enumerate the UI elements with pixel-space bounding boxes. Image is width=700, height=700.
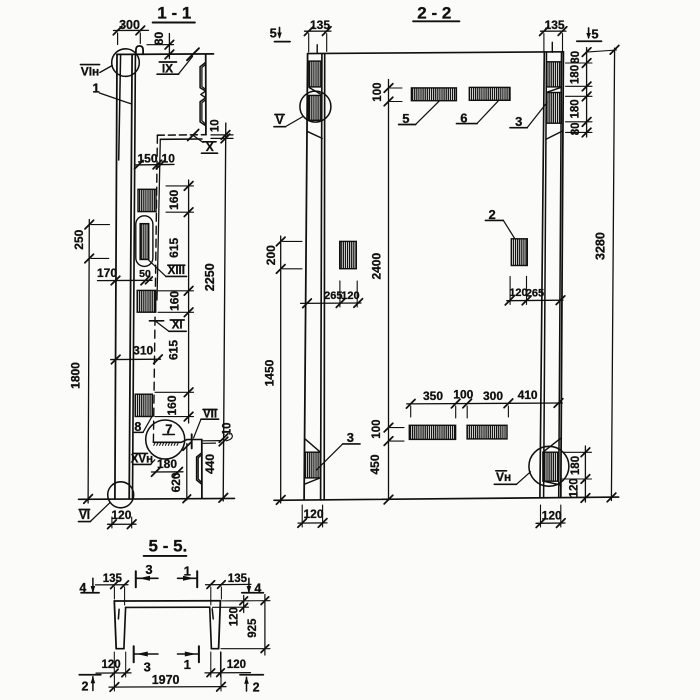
- svg-text:100: 100: [372, 83, 384, 102]
- svg-text:100: 100: [453, 388, 473, 402]
- svg-text:3: 3: [145, 562, 152, 577]
- svg-text:180: 180: [570, 456, 582, 475]
- svg-text:615: 615: [167, 340, 181, 360]
- svg-text:3: 3: [515, 114, 522, 129]
- svg-text:410: 410: [518, 388, 538, 402]
- svg-text:1: 1: [184, 564, 191, 579]
- svg-text:120: 120: [542, 509, 562, 523]
- svg-text:1: 1: [184, 657, 191, 672]
- svg-text:1450: 1450: [263, 359, 277, 386]
- svg-text:1800: 1800: [68, 362, 82, 389]
- svg-text:135: 135: [228, 573, 248, 585]
- svg-text:135: 135: [545, 18, 565, 32]
- svg-text:2: 2: [82, 679, 89, 693]
- svg-text:Vн: Vн: [496, 470, 511, 484]
- svg-text:2: 2: [253, 680, 260, 694]
- svg-text:200: 200: [264, 245, 278, 265]
- svg-text:5 - 5.: 5 - 5.: [149, 536, 188, 555]
- svg-text:10: 10: [162, 151, 176, 165]
- svg-text:135: 135: [103, 573, 123, 585]
- svg-text:170: 170: [97, 266, 117, 280]
- svg-text:300: 300: [119, 18, 140, 32]
- svg-text:250: 250: [72, 229, 86, 249]
- svg-text:80: 80: [152, 32, 166, 46]
- svg-text:10: 10: [209, 119, 221, 132]
- svg-text:5: 5: [270, 26, 277, 41]
- svg-text:VIн: VIн: [81, 64, 100, 78]
- svg-text:135: 135: [310, 18, 330, 32]
- svg-text:180: 180: [570, 99, 582, 118]
- svg-text:80: 80: [570, 51, 582, 64]
- svg-text:160: 160: [167, 189, 181, 209]
- svg-text:VI: VI: [79, 510, 90, 522]
- svg-text:5: 5: [591, 27, 598, 42]
- svg-text:2 - 2: 2 - 2: [417, 4, 451, 23]
- svg-text:615: 615: [167, 237, 181, 257]
- svg-text:IX: IX: [162, 61, 173, 75]
- svg-text:265: 265: [526, 288, 544, 300]
- svg-text:5: 5: [402, 111, 409, 126]
- svg-text:350: 350: [423, 389, 443, 403]
- svg-text:925: 925: [247, 618, 259, 638]
- svg-text:XVн: XVн: [131, 453, 153, 465]
- svg-text:2250: 2250: [203, 263, 217, 291]
- svg-text:450: 450: [368, 454, 382, 474]
- svg-text:160: 160: [165, 395, 179, 415]
- svg-text:150: 150: [137, 152, 157, 166]
- svg-text:180: 180: [157, 457, 177, 471]
- svg-text:2400: 2400: [370, 253, 384, 280]
- svg-text:X: X: [206, 140, 214, 154]
- svg-text:120: 120: [111, 508, 131, 522]
- svg-text:3: 3: [347, 430, 354, 445]
- svg-text:120: 120: [102, 659, 121, 671]
- svg-text:120: 120: [229, 607, 241, 626]
- svg-text:160: 160: [167, 291, 181, 311]
- svg-text:310: 310: [133, 344, 153, 358]
- svg-text:1970: 1970: [152, 673, 180, 687]
- svg-text:180: 180: [570, 65, 582, 84]
- svg-text:120: 120: [303, 507, 323, 521]
- svg-text:2: 2: [488, 207, 495, 222]
- svg-text:120: 120: [227, 659, 246, 671]
- svg-text:50: 50: [139, 268, 151, 280]
- svg-text:440: 440: [203, 454, 217, 474]
- svg-text:1 - 1: 1 - 1: [157, 3, 191, 22]
- svg-text:120: 120: [568, 478, 580, 497]
- svg-text:XI: XI: [172, 320, 183, 332]
- svg-text:3280: 3280: [594, 232, 608, 260]
- svg-text:3: 3: [144, 660, 151, 675]
- svg-text:300: 300: [483, 389, 503, 403]
- svg-text:1: 1: [92, 81, 99, 96]
- svg-text:V: V: [276, 113, 284, 127]
- svg-text:XIII: XIII: [168, 265, 185, 277]
- svg-text:100: 100: [371, 420, 383, 439]
- svg-text:80: 80: [570, 123, 582, 136]
